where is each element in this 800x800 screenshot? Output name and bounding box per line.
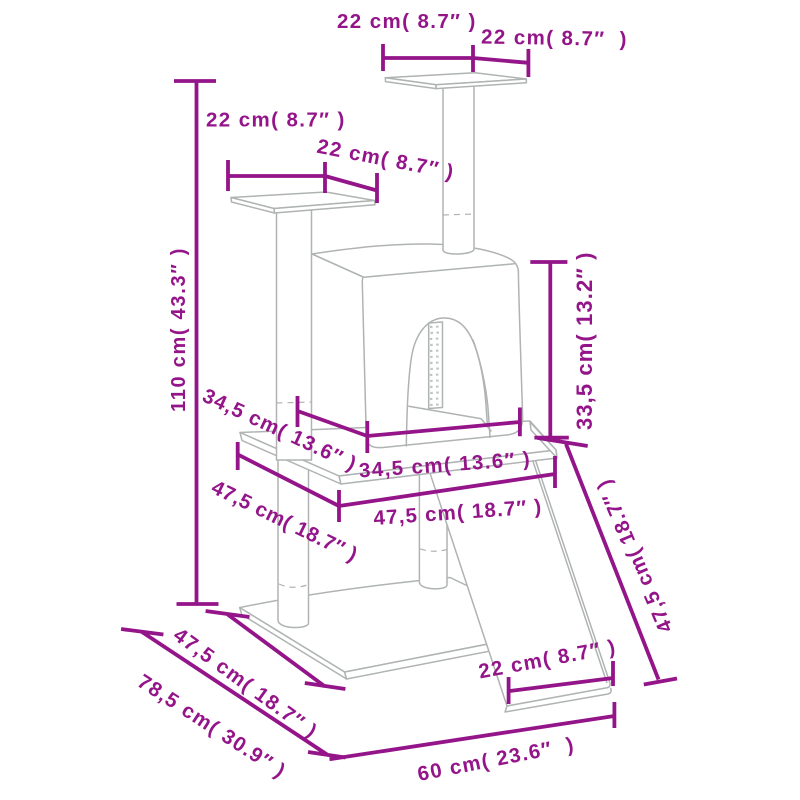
svg-text:22 cm( 8.7″ ): 22 cm( 8.7″ ) (315, 135, 457, 184)
svg-text:33,5 cm( 13.2″ ): 33,5 cm( 13.2″ ) (572, 251, 597, 430)
svg-text:22 cm( 8.7″ ): 22 cm( 8.7″ ) (206, 109, 346, 132)
svg-text:22 cm( 8.7″ ): 22 cm( 8.7″ ) (337, 10, 477, 33)
svg-text:110 cm( 43.3″ ): 110 cm( 43.3″ ) (168, 247, 190, 412)
svg-text:22 cm( 8.7″ ): 22 cm( 8.7″ ) (481, 26, 628, 52)
svg-text:47,5 cm( 18.7″ ): 47,5 cm( 18.7″ ) (592, 476, 677, 636)
